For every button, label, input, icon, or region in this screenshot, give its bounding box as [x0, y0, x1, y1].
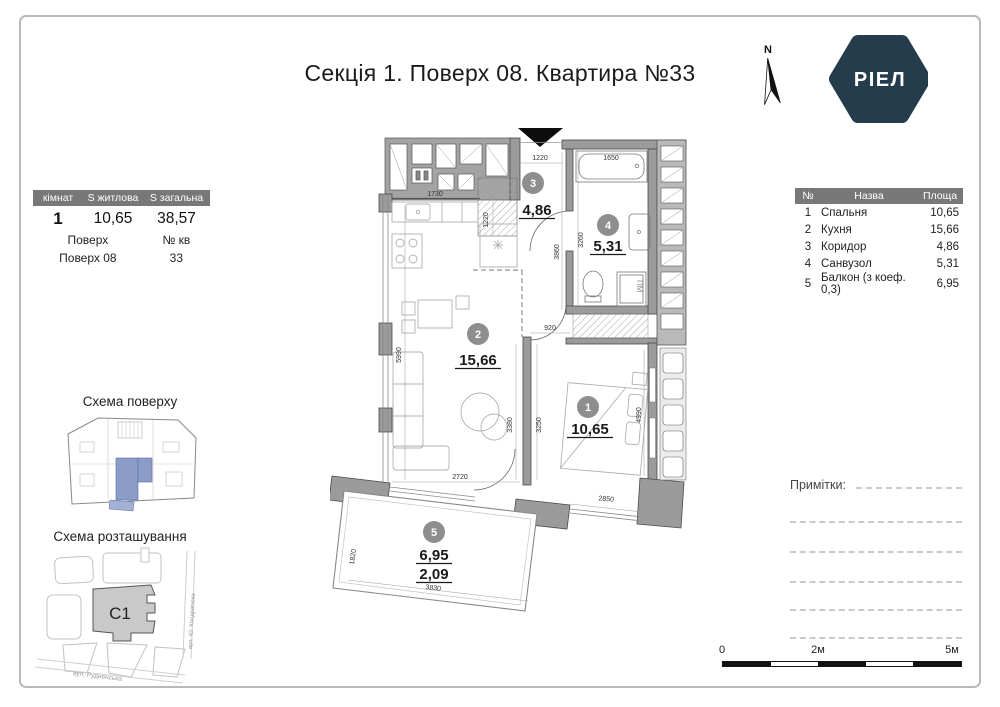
col-area: Площа	[917, 190, 963, 202]
location-scheme: С1 вул. Ю. Кондратюка вул. Рудненська	[35, 547, 230, 687]
svg-text:2850: 2850	[598, 495, 614, 503]
notes-line	[790, 609, 962, 611]
notes-line	[790, 581, 962, 583]
svg-text:2,09: 2,09	[419, 566, 448, 583]
svg-text:4: 4	[605, 220, 612, 232]
svg-text:2720: 2720	[452, 474, 468, 481]
svg-text:4990: 4990	[636, 407, 643, 423]
svg-text:3: 3	[530, 178, 536, 190]
street-right-label: вул. Ю. Кондратюка	[188, 593, 197, 650]
apt-value: 33	[143, 251, 210, 265]
north-label: N	[764, 44, 772, 56]
notes-line	[790, 637, 962, 639]
col-living-area: S житлова	[83, 192, 143, 204]
scale-label-2m: 2м	[808, 644, 828, 656]
notes-label: Примітки:	[790, 478, 846, 492]
svg-text:3250: 3250	[536, 417, 543, 433]
scale-label-5m: 5м	[942, 644, 962, 656]
notes-line	[790, 551, 962, 553]
building-c1: С1	[93, 585, 155, 641]
floor-plan-sheet: Секція 1. Поверх 08. Квартира №33 N РІЕЛ…	[0, 0, 1000, 707]
location-scheme-title: Схема розташування	[30, 529, 210, 544]
apt-label: № кв	[143, 233, 210, 247]
kitchen-furniture	[392, 202, 517, 470]
svg-text:1220: 1220	[483, 212, 490, 228]
unit-table-header: кімнат S житлова S загальна	[33, 190, 210, 206]
legend-row: 4 Санвузол 5,31	[795, 255, 963, 272]
floor-apt-values: Поверх 08 33	[33, 249, 210, 267]
scale-bar	[722, 661, 962, 667]
notes-line	[856, 487, 962, 489]
legend-header: № Назва Площа	[795, 188, 963, 204]
svg-text:4,86: 4,86	[522, 202, 551, 219]
hatched-niche	[573, 314, 648, 338]
window	[650, 368, 656, 402]
svg-text:3380: 3380	[507, 417, 514, 433]
scale-label-0: 0	[714, 644, 730, 656]
legend-row: 3 Коридор 4,86	[795, 238, 963, 255]
floor-scheme	[58, 412, 203, 512]
svg-text:1650: 1650	[603, 155, 619, 162]
north-arrow-icon: N	[750, 40, 796, 116]
floor-label: Поверх	[33, 233, 143, 247]
col-name: Назва	[821, 190, 917, 202]
total-area-value: 38,57	[143, 210, 210, 228]
col-total-area: S загальна	[143, 192, 210, 204]
rooms-count: 1	[33, 209, 83, 229]
legend-row: 5 Балкон (з коеф. 0,3) 6,95	[795, 272, 963, 289]
unit-summary-table: кімнат S житлова S загальна 1 10,65 38,5…	[33, 190, 210, 267]
entrance-arrow-icon	[518, 128, 563, 147]
svg-text:6,95: 6,95	[419, 547, 448, 564]
legend-table: № Назва Площа 1 Спальня 10,65 2 Кухня 15…	[795, 188, 963, 289]
svg-text:3860: 3860	[554, 244, 561, 260]
logo-text: РІЕЛ	[854, 69, 906, 91]
floor-plan: ПМ 1220 1650 1730 1220 3860 3260 920 599…	[330, 120, 700, 620]
svg-text:1220: 1220	[532, 155, 548, 162]
svg-text:5: 5	[431, 527, 437, 539]
svg-text:2: 2	[475, 329, 481, 341]
unit-table-values: 1 10,65 38,57	[33, 206, 210, 231]
floor-scheme-title: Схема поверху	[45, 394, 215, 409]
svg-text:5,31: 5,31	[593, 238, 622, 255]
floor-apt-labels: Поверх № кв	[33, 231, 210, 249]
technical-shaft-strip	[657, 140, 686, 480]
svg-text:3260: 3260	[578, 232, 585, 248]
svg-text:10,65: 10,65	[571, 421, 609, 438]
svg-text:920: 920	[544, 325, 556, 332]
logo: РІЕЛ	[828, 28, 928, 130]
living-area-value: 10,65	[83, 210, 143, 228]
col-num: №	[795, 190, 821, 202]
notes-line	[790, 521, 962, 523]
legend-row: 2 Кухня 15,66	[795, 221, 963, 238]
legend-row: 1 Спальня 10,65	[795, 204, 963, 221]
floor-value: Поверх 08	[33, 251, 143, 265]
svg-text:1: 1	[585, 402, 591, 414]
building-label: С1	[109, 604, 131, 623]
svg-text:15,66: 15,66	[459, 352, 497, 369]
col-rooms: кімнат	[33, 192, 83, 204]
window	[650, 418, 656, 458]
svg-text:5990: 5990	[396, 347, 403, 363]
svg-text:1730: 1730	[427, 191, 443, 198]
washer-label: ПМ	[635, 280, 644, 293]
